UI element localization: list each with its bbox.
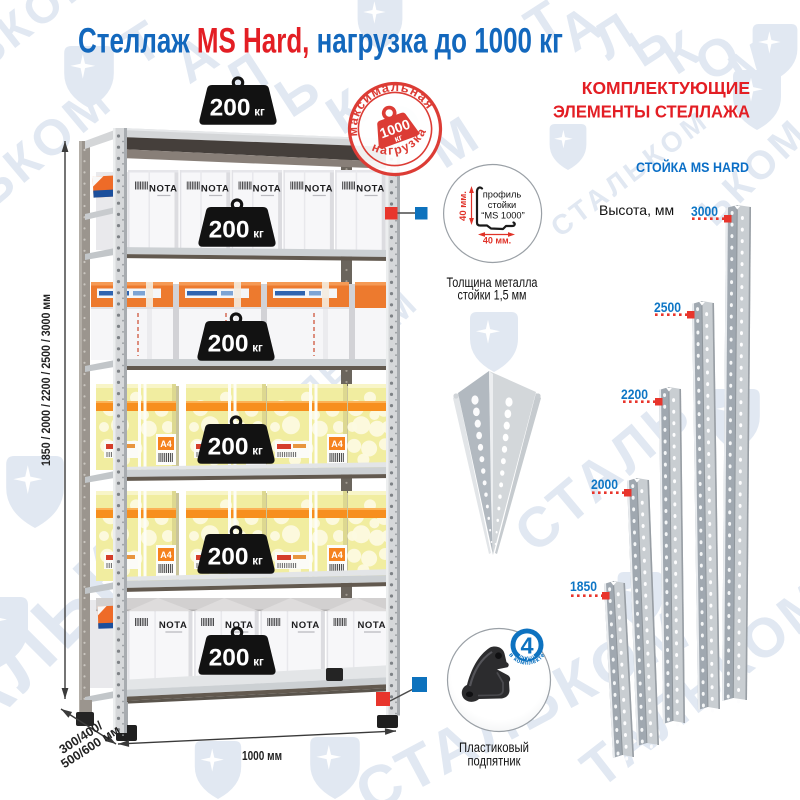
svg-text:NOTA: NOTA (357, 620, 386, 631)
svg-text:кг: кг (253, 657, 264, 669)
svg-text:200: 200 (208, 434, 249, 461)
svg-text:1000 мм: 1000 мм (242, 748, 282, 763)
svg-text:профиль: профиль (483, 190, 522, 200)
svg-text:кг: кг (252, 446, 263, 458)
svg-text:NOTA: NOTA (304, 184, 333, 195)
svg-text:A4: A4 (160, 550, 172, 560)
svg-text:200: 200 (208, 544, 249, 571)
svg-text:NOTA: NOTA (159, 620, 188, 631)
svg-text:стойки: стойки (488, 200, 516, 210)
svg-text:ЭЛЕМЕНТЫ СТЕЛЛАЖА: ЭЛЕМЕНТЫ СТЕЛЛАЖА (553, 102, 750, 122)
svg-text:подпятник: подпятник (468, 754, 521, 769)
svg-text:кг: кг (252, 343, 263, 355)
svg-text:NOTA: NOTA (149, 184, 178, 195)
svg-text:2200: 2200 (621, 387, 648, 402)
svg-text:кг: кг (254, 107, 265, 119)
svg-text:2500: 2500 (654, 300, 681, 315)
svg-text:A4: A4 (331, 439, 343, 449)
svg-text:2000: 2000 (591, 477, 618, 492)
svg-text:200: 200 (210, 95, 251, 122)
svg-text:40 мм.: 40 мм. (483, 236, 511, 246)
svg-text:200: 200 (208, 331, 249, 358)
svg-text:3000: 3000 (691, 204, 718, 219)
svg-text:A4: A4 (160, 439, 172, 449)
svg-text:стойки 1,5 мм: стойки 1,5 мм (458, 288, 527, 303)
svg-text:1850: 1850 (570, 579, 597, 594)
svg-text:NOTA: NOTA (291, 620, 320, 631)
svg-text:Высота, мм: Высота, мм (599, 202, 674, 218)
svg-text:NOTA: NOTA (356, 184, 385, 195)
svg-text:СТОЙКА MS HARD: СТОЙКА MS HARD (636, 158, 749, 175)
svg-text:200: 200 (209, 217, 250, 244)
svg-text:40 мм.: 40 мм. (458, 191, 469, 221)
svg-text:КОМПЛЕКТУЮЩИЕ: КОМПЛЕКТУЮЩИЕ (582, 78, 750, 98)
svg-text:NOTA: NOTA (253, 184, 282, 195)
svg-text:NOTA: NOTA (201, 184, 230, 195)
svg-text:кг: кг (253, 229, 264, 241)
svg-text:Стеллаж MS Hard, нагрузка до 1: Стеллаж MS Hard, нагрузка до 1000 кг (78, 21, 563, 61)
svg-text:A4: A4 (331, 550, 343, 560)
svg-text:200: 200 (209, 645, 250, 672)
svg-text:1850 / 2000 / 2200 / 2500 / 30: 1850 / 2000 / 2200 / 2500 / 3000 мм (39, 294, 53, 466)
svg-text:кг: кг (252, 556, 263, 568)
svg-text:“MS 1000”: “MS 1000” (481, 211, 524, 221)
